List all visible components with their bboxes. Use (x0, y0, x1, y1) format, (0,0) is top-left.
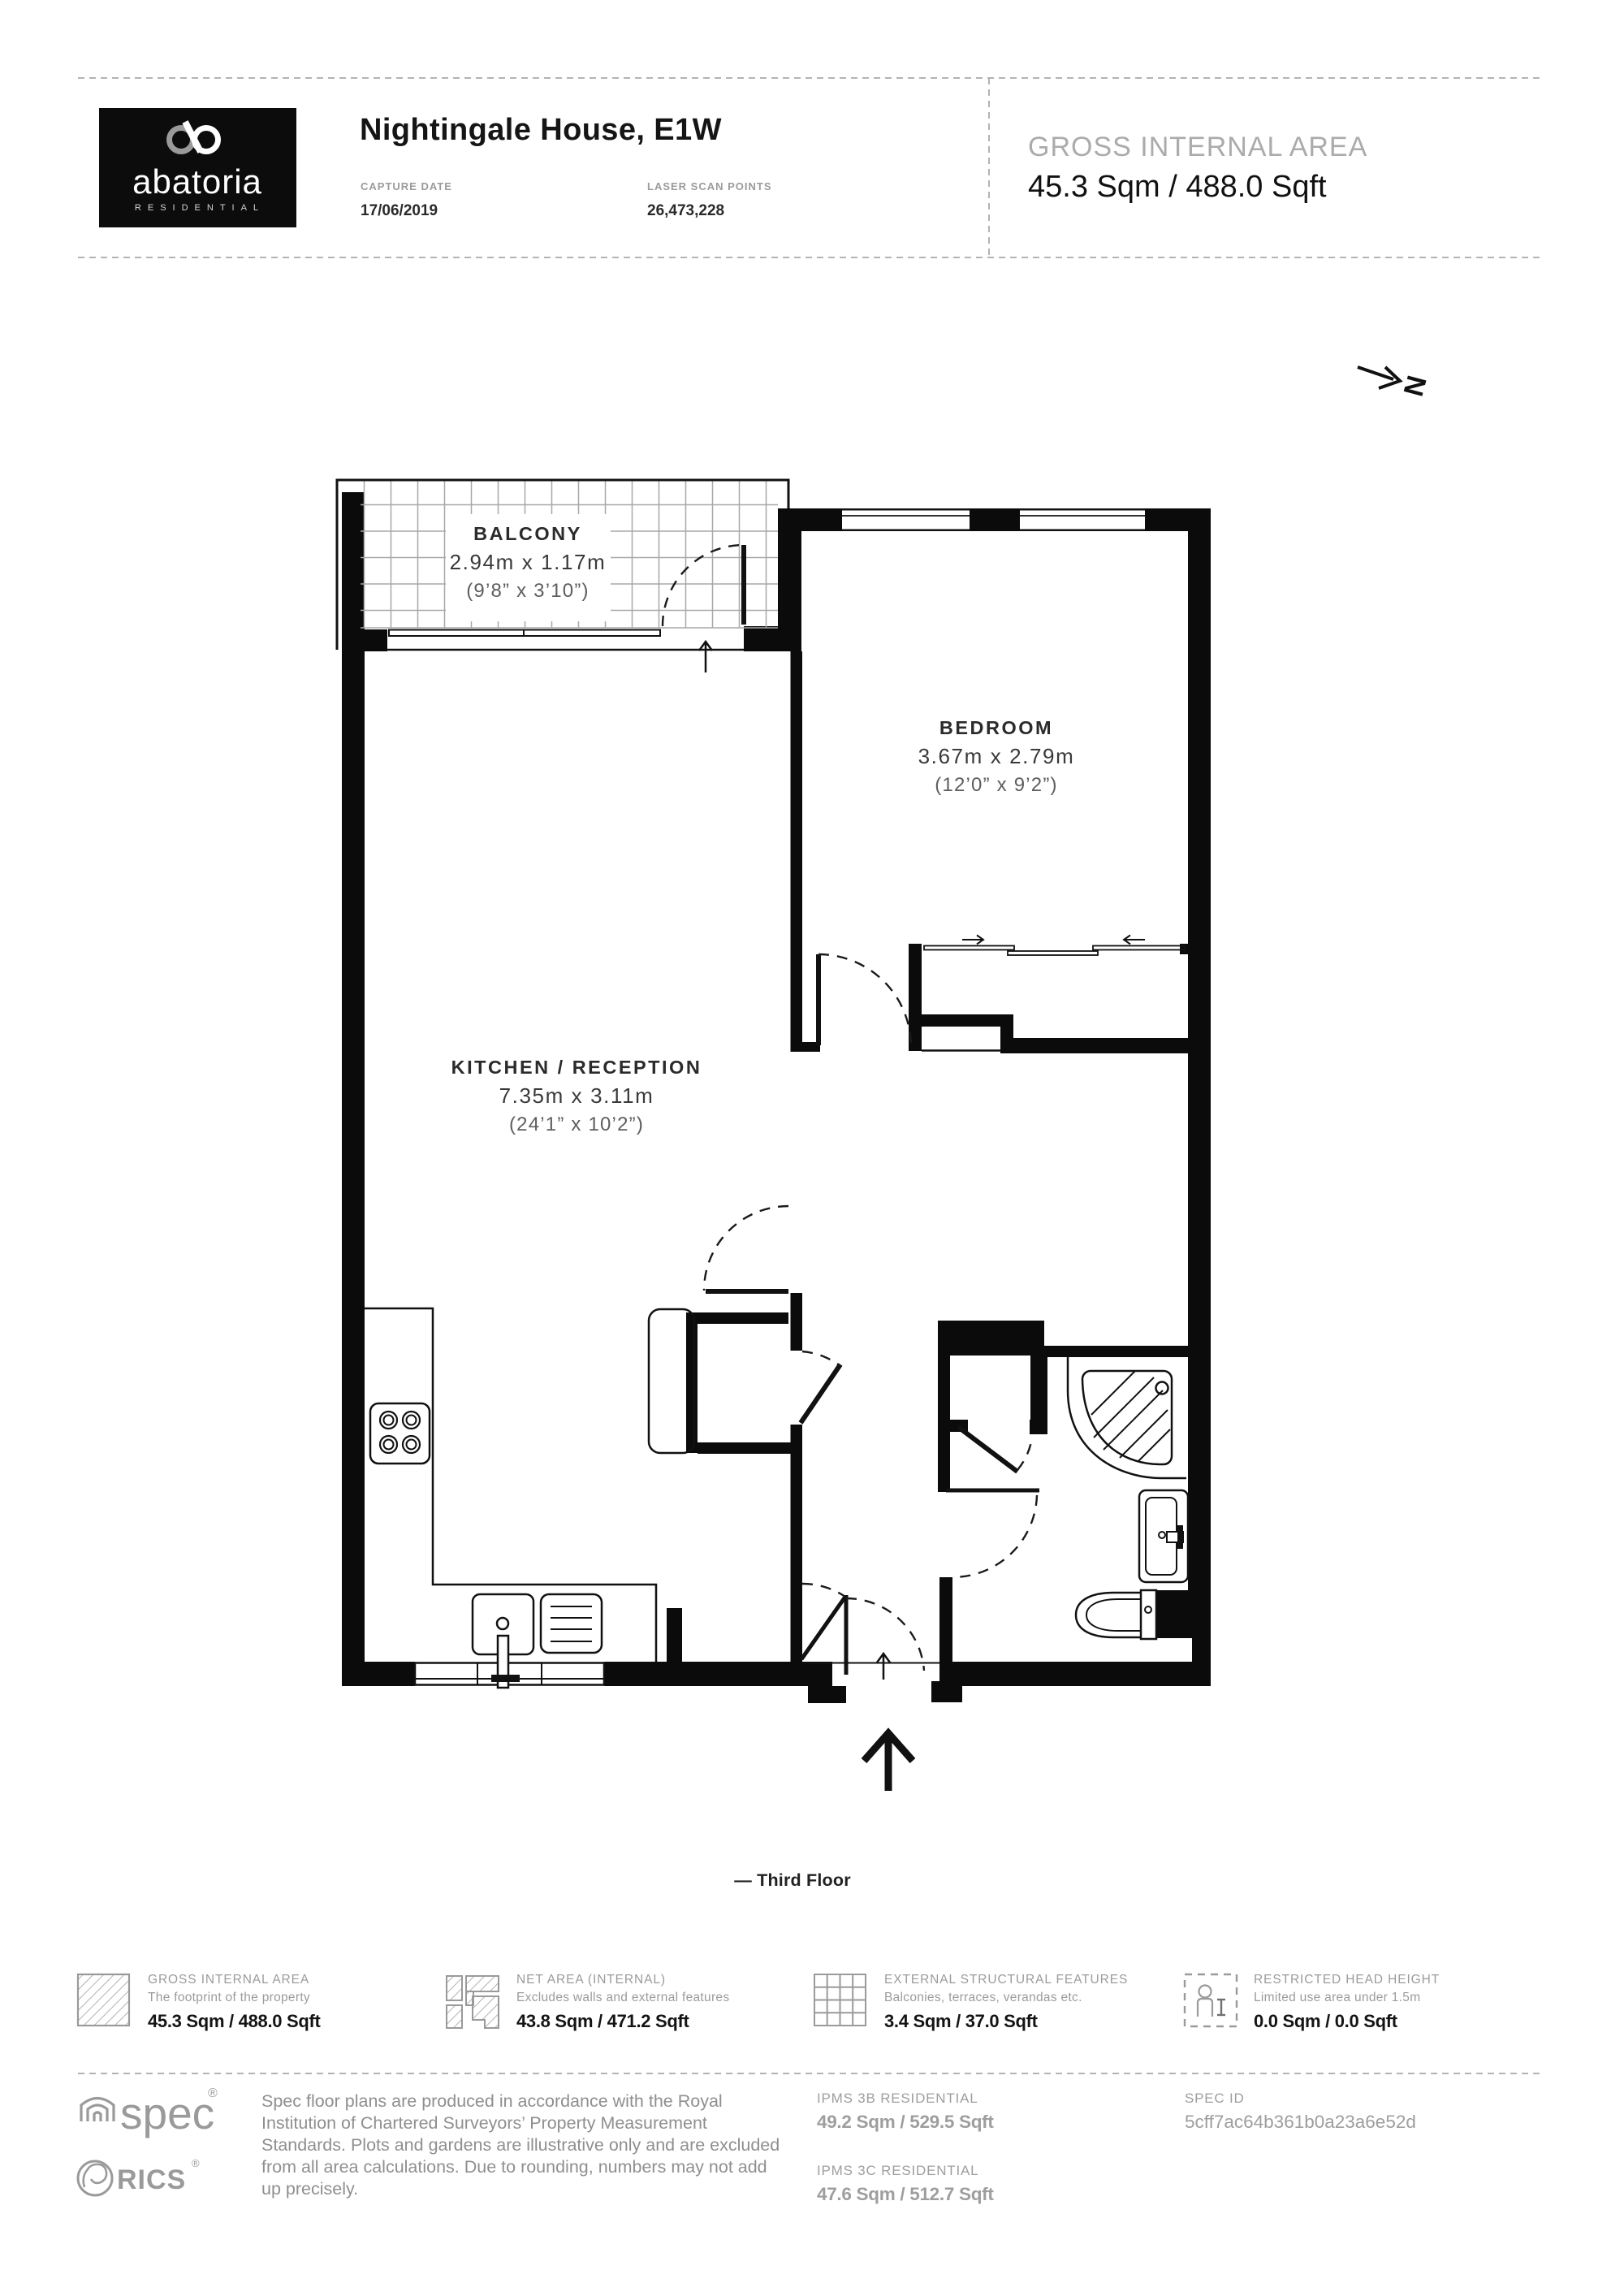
svg-text:EXTERNAL STRUCTURAL FEATURES: EXTERNAL STRUCTURAL FEATURES (884, 1973, 1128, 1987)
svg-text:(12’0” x 9’2”): (12’0” x 9’2”) (935, 774, 1058, 796)
svg-text:(24’1” x 10’2”): (24’1” x 10’2”) (509, 1113, 644, 1135)
svg-text:GROSS INTERNAL AREA: GROSS INTERNAL AREA (148, 1973, 309, 1987)
svg-text:47.6 Sqm / 512.7 Sqft: 47.6 Sqm / 512.7 Sqft (817, 2184, 994, 2204)
svg-text:RESIDENTIAL: RESIDENTIAL (135, 203, 265, 213)
svg-text:45.3 Sqm / 488.0 Sqft: 45.3 Sqm / 488.0 Sqft (148, 2011, 322, 2031)
svg-text:43.8 Sqm / 471.2 Sqft: 43.8 Sqm / 471.2 Sqft (516, 2011, 690, 2031)
svg-text:NET AREA (INTERNAL): NET AREA (INTERNAL) (516, 1973, 666, 1987)
svg-text:abatoria: abatoria (132, 162, 262, 201)
svg-text:KITCHEN / RECEPTION: KITCHEN / RECEPTION (451, 1057, 702, 1078)
svg-text:0.0 Sqm / 0.0 Sqft: 0.0 Sqm / 0.0 Sqft (1254, 2011, 1398, 2031)
svg-text:BEDROOM: BEDROOM (939, 717, 1053, 738)
svg-text:2.94m x 1.17m: 2.94m x 1.17m (450, 550, 607, 574)
svg-text:Balconies, terraces, verandas: Balconies, terraces, verandas etc. (884, 1991, 1082, 2004)
svg-text:Standards. Plots and gardens a: Standards. Plots and gardens are illustr… (261, 2135, 780, 2155)
svg-text:49.2 Sqm / 529.5 Sqft: 49.2 Sqm / 529.5 Sqft (817, 2112, 994, 2132)
svg-text:BALCONY: BALCONY (473, 523, 582, 544)
svg-text:RICS: RICS (117, 2164, 186, 2195)
svg-text:IPMS 3C RESIDENTIAL: IPMS 3C RESIDENTIAL (817, 2163, 978, 2178)
svg-text:®: ® (192, 2157, 200, 2169)
svg-text:17/06/2019: 17/06/2019 (361, 202, 438, 219)
svg-text:Spec floor plans are produced: Spec floor plans are produced in accorda… (261, 2091, 723, 2111)
svg-text:IPMS 3B RESIDENTIAL: IPMS 3B RESIDENTIAL (817, 2091, 978, 2106)
svg-text:— Third Floor: — Third Floor (734, 1870, 851, 1890)
svg-text:3.67m x 2.79m: 3.67m x 2.79m (918, 744, 1075, 768)
svg-text:®: ® (208, 2086, 218, 2100)
svg-text:45.3 Sqm / 488.0 Sqft: 45.3 Sqm / 488.0 Sqft (1028, 170, 1327, 204)
svg-text:RESTRICTED HEAD HEIGHT: RESTRICTED HEAD HEIGHT (1254, 1973, 1440, 1987)
svg-text:spec: spec (120, 2088, 214, 2138)
svg-text:SPEC ID: SPEC ID (1185, 2091, 1245, 2106)
svg-text:The footprint of the property: The footprint of the property (148, 1991, 310, 2004)
svg-text:(9’8” x 3’10”): (9’8” x 3’10”) (466, 580, 590, 602)
svg-text:LASER SCAN POINTS: LASER SCAN POINTS (647, 180, 772, 192)
svg-text:Institution of Chartered Surve: Institution of Chartered Surveyors’ Prop… (261, 2113, 707, 2133)
svg-text:Limited use area under 1.5m: Limited use area under 1.5m (1254, 1991, 1420, 2004)
svg-text:from all area calculations. Du: from all area calculations. Due to round… (261, 2157, 767, 2177)
svg-text:5cff7ac64b361b0a23a6e52d: 5cff7ac64b361b0a23a6e52d (1185, 2112, 1416, 2132)
svg-text:3.4 Sqm / 37.0 Sqft: 3.4 Sqm / 37.0 Sqft (884, 2011, 1039, 2031)
svg-text:Excludes walls and external fe: Excludes walls and external features (516, 1991, 729, 2004)
svg-text:Nightingale House, E1W: Nightingale House, E1W (360, 113, 722, 147)
svg-text:CAPTURE DATE: CAPTURE DATE (361, 180, 452, 192)
svg-text:GROSS INTERNAL AREA: GROSS INTERNAL AREA (1028, 132, 1367, 162)
svg-text:up precisely.: up precisely. (261, 2179, 358, 2199)
svg-text:7.35m x 3.11m: 7.35m x 3.11m (499, 1083, 654, 1108)
svg-text:26,473,228: 26,473,228 (647, 202, 724, 219)
